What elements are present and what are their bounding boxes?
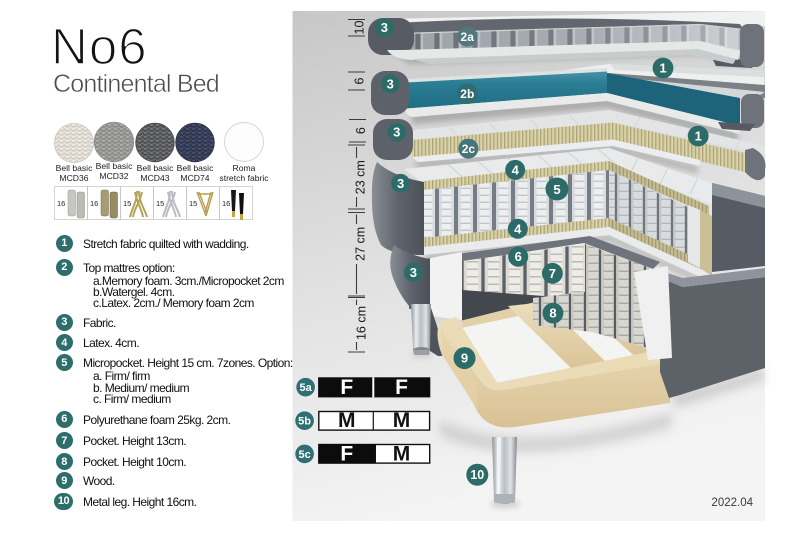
svg-text:6: 6 [353,77,367,84]
svg-text:1: 1 [659,61,666,76]
svg-text:M: M [393,409,411,432]
svg-text:3: 3 [381,20,388,35]
svg-text:27 cm: 27 cm [354,227,368,261]
svg-text:9: 9 [461,351,468,366]
svg-text:3: 3 [397,176,404,191]
svg-text:2a: 2a [461,30,475,44]
svg-text:4: 4 [514,221,522,236]
svg-text:6: 6 [515,249,522,264]
svg-text:2c: 2c [462,142,476,156]
svg-text:23 cm: 23 cm [354,160,368,194]
svg-text:5: 5 [553,182,560,197]
svg-text:10: 10 [470,468,484,482]
svg-text:3: 3 [393,125,400,140]
svg-text:4: 4 [512,162,520,177]
svg-text:2022.04: 2022.04 [711,497,753,509]
svg-text:2b: 2b [460,87,474,101]
svg-text:F: F [395,376,408,399]
svg-text:3: 3 [410,265,417,280]
svg-text:M: M [338,409,356,432]
svg-text:6: 6 [354,127,368,134]
svg-text:7: 7 [549,266,556,281]
svg-text:10: 10 [353,21,367,35]
svg-text:3: 3 [387,76,394,91]
svg-text:5a: 5a [299,382,312,394]
svg-text:5b: 5b [298,416,311,428]
svg-text:F: F [340,443,353,466]
svg-text:16 cm: 16 cm [355,306,369,340]
svg-text:M: M [393,443,411,466]
svg-text:8: 8 [549,306,556,321]
svg-text:5c: 5c [298,449,310,461]
svg-text:F: F [340,376,353,399]
svg-text:1: 1 [695,129,702,144]
